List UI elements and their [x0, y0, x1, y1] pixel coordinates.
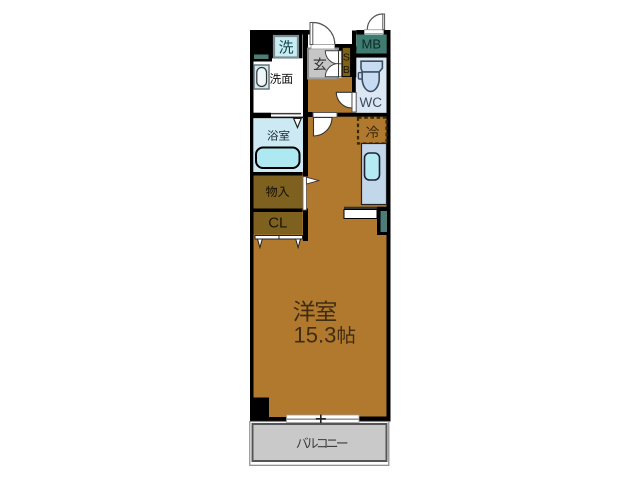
svg-text:MB: MB	[362, 37, 382, 52]
svg-text:CL: CL	[268, 215, 287, 232]
svg-text:S: S	[343, 52, 350, 64]
svg-text:B: B	[343, 64, 350, 76]
svg-text:15.3: 15.3	[294, 323, 337, 348]
svg-text:WC: WC	[360, 95, 383, 110]
